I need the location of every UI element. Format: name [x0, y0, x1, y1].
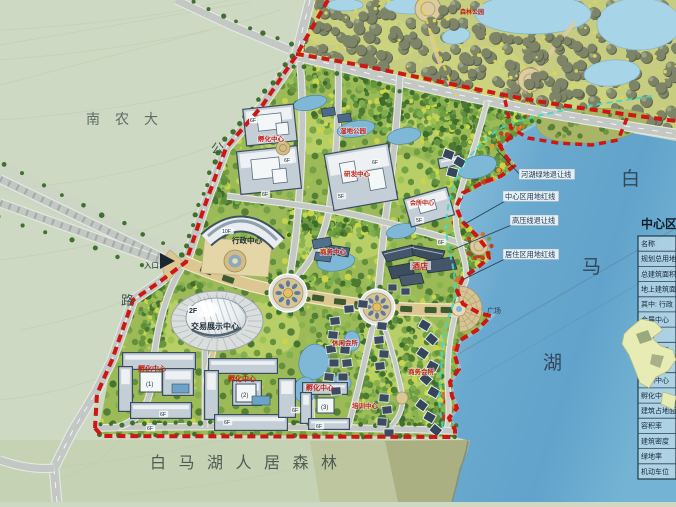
svg-text:(2): (2): [241, 393, 248, 399]
svg-text:公: 公: [211, 141, 224, 156]
svg-text:中心区用地红线: 中心区用地红线: [505, 192, 555, 201]
svg-text:6F: 6F: [316, 424, 322, 430]
svg-text:研发中心: 研发中心: [344, 169, 371, 178]
svg-text:10F: 10F: [222, 229, 231, 235]
svg-text:6F: 6F: [250, 118, 256, 124]
svg-text:地上建筑面积: 地上建筑面积: [641, 285, 676, 294]
svg-text:容积率: 容积率: [641, 421, 662, 430]
svg-text:中心区技术指标: 中心区技术指标: [641, 216, 676, 231]
svg-text:2F: 2F: [189, 308, 198, 315]
svg-text:规划总用地: 规划总用地: [641, 254, 676, 263]
svg-text:6F: 6F: [372, 160, 378, 166]
svg-text:孵化中心: 孵化中心: [138, 364, 166, 373]
svg-text:6F: 6F: [262, 192, 268, 198]
svg-text:马: 马: [582, 257, 601, 278]
svg-text:其中: 行政: 其中: 行政: [641, 300, 673, 309]
svg-text:河湖绿地退让线: 河湖绿地退让线: [521, 170, 571, 179]
svg-text:(3): (3): [321, 405, 328, 411]
svg-text:湖: 湖: [543, 352, 562, 374]
svg-text:培训中心: 培训中心: [352, 401, 379, 410]
svg-text:森林公园: 森林公园: [459, 8, 484, 16]
svg-text:休闲会所: 休闲会所: [331, 338, 359, 347]
svg-text:白: 白: [621, 168, 640, 190]
svg-text:路: 路: [121, 293, 134, 308]
svg-text:总建筑面积: 总建筑面积: [641, 269, 676, 278]
svg-text:6F: 6F: [160, 412, 166, 418]
svg-text:名称: 名称: [641, 239, 655, 248]
svg-text:(1): (1): [146, 382, 153, 388]
svg-text:6F: 6F: [284, 158, 290, 164]
svg-text:6F: 6F: [292, 408, 298, 414]
svg-text:孵化中心: 孵化中心: [228, 374, 256, 383]
svg-text:商务中心: 商务中心: [320, 247, 347, 256]
svg-text:6F: 6F: [147, 426, 153, 432]
svg-text:孵化中心: 孵化中心: [258, 134, 285, 143]
svg-text:商务会所: 商务会所: [408, 367, 435, 376]
svg-text:建筑密度: 建筑密度: [641, 436, 669, 445]
svg-text:6F: 6F: [438, 240, 444, 246]
svg-text:居住区用地红线: 居住区用地红线: [505, 250, 555, 259]
svg-text:孵化中心: 孵化中心: [306, 383, 334, 392]
svg-text:南农大: 南农大: [86, 111, 173, 127]
svg-text:6F: 6F: [224, 420, 230, 426]
svg-text:行政中心: 行政中心: [231, 235, 262, 245]
svg-text:机动车位: 机动车位: [641, 467, 669, 476]
svg-text:广场: 广场: [487, 306, 501, 315]
svg-text:入口: 入口: [144, 261, 159, 270]
svg-text:湿地公园: 湿地公园: [340, 126, 367, 135]
svg-text:5F: 5F: [338, 194, 344, 200]
svg-text:酒店: 酒店: [412, 261, 428, 271]
svg-text:高压线退让线: 高压线退让线: [512, 216, 555, 225]
svg-text:交易展示中心: 交易展示中心: [191, 321, 239, 331]
svg-text:绿地率: 绿地率: [641, 452, 662, 461]
svg-text:5F: 5F: [416, 218, 422, 224]
svg-text:白马湖人居森林: 白马湖人居森林: [150, 454, 350, 472]
svg-text:会所中心: 会所中心: [410, 199, 434, 207]
